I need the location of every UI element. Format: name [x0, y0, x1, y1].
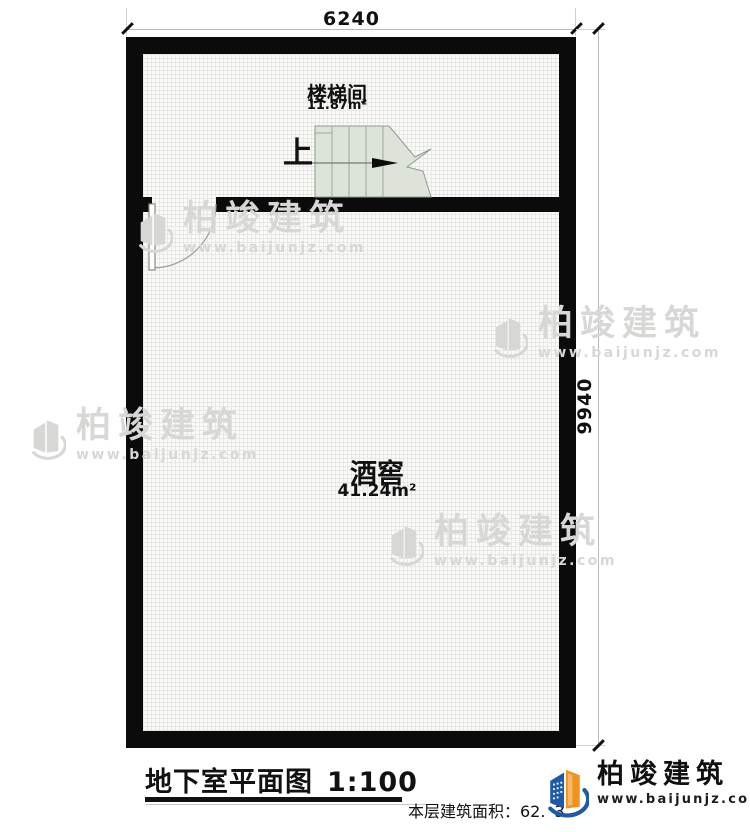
drawing-scale: 1:100	[327, 767, 418, 798]
door-swing	[140, 196, 225, 276]
door-leaf	[149, 204, 155, 270]
drawing-title-text: 地下室平面图	[145, 767, 313, 798]
brand-url: www.baijunjz.com	[597, 792, 750, 807]
dimension-label-right: 9940	[574, 378, 596, 435]
title-underline-light	[145, 804, 432, 805]
brand-name: 柏竣建筑	[597, 761, 750, 788]
brand-logo: 柏竣建筑 www.baijunjz.com	[541, 761, 750, 821]
dimension-label-top: 6240	[127, 8, 576, 30]
dimension-line-right	[598, 29, 599, 746]
watermark-logo-icon	[26, 412, 66, 464]
floorplan-canvas: 6240 9940 上 楼梯间 11.87m² 酒窖 41.24m²	[0, 0, 750, 832]
stair-up-label: 上	[283, 139, 313, 169]
floor-area-label: 本层建筑面积：62.	[408, 802, 545, 821]
extension-line-right-top	[576, 29, 605, 30]
room-area-stairwell: 11.87m²	[307, 98, 367, 113]
door-arc	[152, 204, 216, 268]
room-area-wine-cellar: 41.24m²	[338, 481, 417, 501]
drawing-title: 地下室平面图1:100	[145, 760, 418, 799]
brand-logo-icon	[541, 761, 589, 821]
